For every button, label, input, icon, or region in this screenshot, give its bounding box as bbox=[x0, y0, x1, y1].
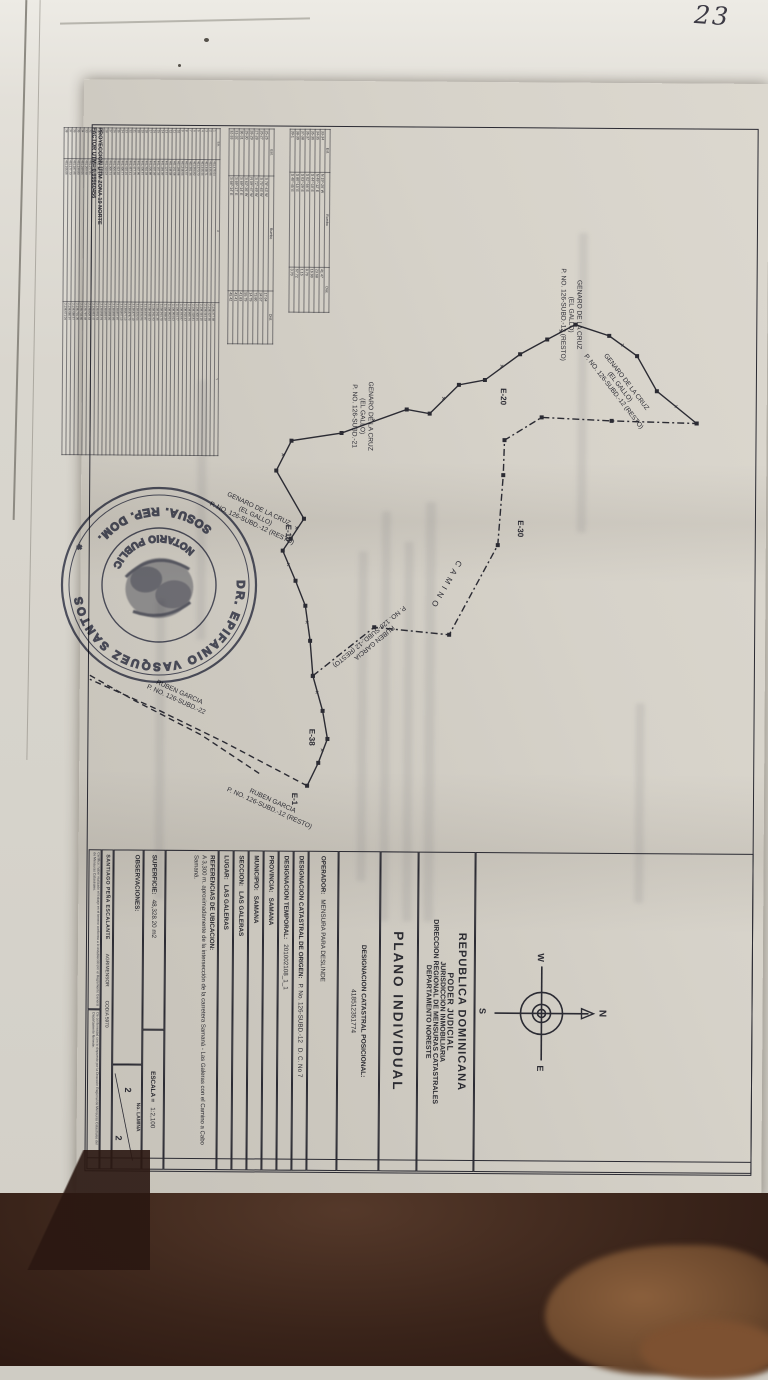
vertex-marker bbox=[289, 439, 293, 443]
vertex-marker bbox=[308, 639, 312, 643]
vertex-marker bbox=[447, 633, 451, 637]
vertex-marker bbox=[457, 383, 461, 387]
fence-tick: × bbox=[672, 404, 679, 408]
neighbor-parcel-label: RUBEN GARCIAP. NO. 126-SUBD.-12 (RESTO) bbox=[226, 779, 316, 831]
vertex-marker bbox=[501, 473, 505, 477]
origen-value: P. No. 126-SUBD.-12 bbox=[296, 984, 303, 1043]
operador-label: OPERADOR: bbox=[320, 856, 327, 895]
titleblock-firmante: SANTIAGO PEÑA ESCALANTE AGRIMENSOR CODIA… bbox=[99, 849, 113, 1169]
vertex-marker bbox=[428, 412, 432, 416]
north-arrow-compass: N S E W bbox=[473, 853, 752, 1174]
cert2-text: De conformidad con lo dispuesto por la D… bbox=[91, 1012, 99, 1144]
vertex-marker bbox=[274, 469, 278, 473]
svg-text:GENARO DE LA CRUZ: GENARO DE LA CRUZ bbox=[366, 382, 373, 451]
observaciones-label: OBSERVACIONES: bbox=[133, 855, 140, 912]
municipio-label: MUNICIPIO: bbox=[252, 855, 259, 890]
svg-text:E: E bbox=[535, 1065, 545, 1071]
lugar-label: LUGAR: bbox=[222, 855, 229, 880]
neighbor-parcel-label: RUBEN GARCIAP. NO. 126-SUBD.-12 (RESTO) bbox=[331, 604, 412, 674]
vertex-marker bbox=[635, 354, 639, 358]
vertex-marker bbox=[325, 737, 329, 741]
svg-text:W: W bbox=[536, 953, 546, 962]
origen-extra: D. C. No 7 bbox=[296, 1048, 303, 1077]
vertex-label: E-30 bbox=[516, 520, 525, 538]
titleblock-header: REPUBLICA DOMINICANA PODER JUDICIAL JURI… bbox=[416, 852, 475, 1172]
titleblock-seccion: SECCION: LAS GALERAS bbox=[231, 850, 248, 1170]
superficie-value: 48,328.20 m2 bbox=[151, 900, 158, 939]
titleblock-operador: OPERADOR: MENSURA PARA DESLINDE bbox=[306, 851, 338, 1171]
titleblock-temporal: DESIGNACION TEMPORAL: 201002108_1_1 bbox=[276, 851, 293, 1171]
vertex-marker bbox=[502, 438, 506, 442]
fence-tick: × bbox=[618, 343, 625, 347]
vertex-marker bbox=[281, 549, 285, 553]
fence-tick: × bbox=[313, 690, 320, 694]
fence-tick: × bbox=[303, 620, 310, 624]
agrimensor-name: SANTIAGO PEÑA ESCALANTE bbox=[104, 854, 111, 939]
neighbor-parcel-label: GENARO DE LA CRUZ(EL GALLO)P. NO. 126-SU… bbox=[559, 268, 583, 361]
vertex-marker bbox=[483, 378, 487, 382]
seccion-label: SECCION: bbox=[237, 855, 244, 886]
titleblock-north-cell: N S E W bbox=[473, 852, 753, 1174]
table-surface-corner bbox=[0, 1150, 150, 1270]
svg-text:GENARO DE LA CRUZ: GENARO DE LA CRUZ bbox=[575, 280, 582, 349]
titleblock-plano-individual: PLANO INDIVIDUAL bbox=[378, 851, 418, 1171]
header-departamento: DEPARTAMENTO NORESTE bbox=[424, 965, 432, 1059]
vertex-marker bbox=[695, 421, 699, 425]
vertex-marker bbox=[607, 334, 611, 338]
vertex-marker bbox=[518, 352, 522, 356]
header-jurisdiccion: JURISDICCION INMOBILIARIA bbox=[438, 961, 446, 1062]
fence-tick: × bbox=[292, 526, 299, 530]
escala-value: 1:2,100 bbox=[149, 1107, 156, 1128]
vertex-label: E-20 bbox=[499, 388, 508, 406]
neighbor-parcel-label: GENARO DE LA CRUZ(EL GALLO)P. NO. 126-SU… bbox=[350, 381, 373, 450]
svg-text:P. NO. 126-SUBD.-12 (RESTO): P. NO. 126-SUBD.-12 (RESTO) bbox=[226, 786, 313, 831]
svg-text:S: S bbox=[478, 1008, 488, 1014]
svg-text:(EL GALLO): (EL GALLO) bbox=[359, 398, 366, 434]
titleblock-superficie: SUPERFICIE: 48,328.20 m2 bbox=[142, 850, 165, 1030]
escala-label: ESCALA = bbox=[149, 1071, 156, 1102]
titleblock-cert1: Certifico: haber realizado el trabajo en… bbox=[88, 849, 102, 1009]
cert1-text: Certifico: haber realizado el trabajo en… bbox=[92, 852, 100, 1006]
titleblock-posicional: DESIGNACION CATASTRAL POSICIONAL: 418512… bbox=[336, 851, 380, 1171]
agrimensor-codia: CODIA 5970 bbox=[104, 1001, 109, 1028]
vertex-marker bbox=[540, 415, 544, 419]
dust-speck bbox=[178, 64, 181, 67]
svg-text:(EL GALLO): (EL GALLO) bbox=[567, 297, 574, 333]
seccion-value: LAS GALERAS bbox=[237, 891, 244, 936]
superficie-label: SUPERFICIE: bbox=[151, 855, 158, 895]
svg-text:P. NO. 126-SUBD.-21: P. NO. 126-SUBD.-21 bbox=[350, 384, 357, 448]
fence-tick: × bbox=[498, 364, 505, 368]
vertex-marker bbox=[302, 517, 306, 521]
titleblock-cert2: De conformidad con lo dispuesto por la D… bbox=[86, 1009, 100, 1169]
svg-text:N: N bbox=[596, 1010, 607, 1017]
coat-of-arms-icon bbox=[122, 554, 197, 622]
vertex-label: E-1 bbox=[290, 793, 299, 806]
titleblock-provincia: PROVINCIA: SAMANA bbox=[261, 850, 278, 1170]
titleblock-referencias: REFERENCIAS DE UBICACION: A 3,300 m. apr… bbox=[163, 850, 218, 1170]
vertex-marker bbox=[610, 419, 614, 423]
referencias-label: REFERENCIAS DE UBICACION: bbox=[206, 855, 215, 1165]
fence-tick: × bbox=[439, 396, 446, 400]
titleblock-origen: DESIGNACION CATASTRAL DE ORIGEN: P. No. … bbox=[291, 851, 308, 1171]
stamp-star: * bbox=[76, 541, 84, 557]
svg-text:2: 2 bbox=[123, 1088, 133, 1093]
fence-tick: × bbox=[284, 563, 291, 567]
svg-text:2: 2 bbox=[114, 1135, 124, 1140]
handwritten-page-number: 23 bbox=[693, 0, 755, 40]
referencias-value: A 3,300 m. aproximadamente de la interse… bbox=[189, 855, 206, 1165]
vertex-marker bbox=[294, 579, 298, 583]
provincia-value: SAMANA bbox=[267, 898, 274, 926]
titleblock-escala: ESCALA = 1:2,100 bbox=[141, 1030, 164, 1170]
posicional-label: DESIGNACION CATASTRAL POSICIONAL: bbox=[360, 945, 368, 1078]
photo-of-survey-plan: { "photo": { "handwritten_note": "23" },… bbox=[0, 0, 768, 1366]
temporal-value: 201002108_1_1 bbox=[282, 944, 289, 990]
posicional-value: 418512351774 bbox=[350, 989, 357, 1033]
fence-tick: × bbox=[279, 453, 286, 457]
neighbor-parcel-label: GENARO DE LA CRUZ(EL GALLO)P. NO. 126-SU… bbox=[582, 343, 657, 430]
vertex-marker bbox=[316, 761, 320, 765]
vertex-marker bbox=[311, 674, 315, 678]
vertex-marker bbox=[496, 543, 500, 547]
camino-label: CAMINO bbox=[428, 559, 464, 612]
temporal-label: DESIGNACION TEMPORAL: bbox=[282, 856, 290, 940]
vertex-marker bbox=[303, 604, 307, 608]
vertex-marker bbox=[545, 337, 549, 341]
dust-speck bbox=[204, 38, 209, 42]
vertex-marker bbox=[321, 709, 325, 713]
operador-value: MENSURA PARA DESLINDE bbox=[319, 899, 327, 982]
plan-title: PLANO INDIVIDUAL bbox=[390, 931, 406, 1091]
notary-stamp: SOSUA. REP. DOM. NOTARIO PUBLICO DR. EPI… bbox=[40, 466, 278, 704]
titleblock-observaciones: OBSERVACIONES: bbox=[112, 849, 144, 1064]
fence-tick: × bbox=[318, 748, 325, 752]
agrimensor-title: AGRIMENSOR bbox=[104, 954, 109, 987]
header-poder: PODER JUDICIAL bbox=[445, 972, 456, 1051]
header-direccion: DIRECCION REGIONAL DE MENSURAS CATASTRAL… bbox=[431, 919, 439, 1104]
lugar-value: LAS GALERAS bbox=[222, 885, 229, 930]
header-republica: REPUBLICA DOMINICANA bbox=[455, 933, 468, 1091]
vertex-marker bbox=[405, 407, 409, 411]
titleblock-municipio: MUNICIPIO: SAMANA bbox=[246, 850, 263, 1170]
sandal-object-part bbox=[640, 1320, 768, 1380]
vertex-marker bbox=[655, 389, 659, 393]
origen-label: DESIGNACION CATASTRAL DE ORIGEN: bbox=[297, 856, 305, 979]
vertex-marker bbox=[340, 431, 344, 435]
provincia-label: PROVINCIA: bbox=[267, 856, 274, 893]
svg-text:P. NO. 126-SUBD.-12 (RESTO): P. NO. 126-SUBD.-12 (RESTO) bbox=[559, 268, 567, 361]
svg-text:P. NO. 126-SUBD.-12 (RESTO): P. NO. 126-SUBD.-12 (RESTO) bbox=[331, 604, 407, 668]
vertex-label: E-38 bbox=[307, 729, 316, 747]
titleblock-lugar: LUGAR: LAS GALERAS bbox=[216, 850, 233, 1170]
municipio-value: SAMANA bbox=[252, 896, 259, 924]
